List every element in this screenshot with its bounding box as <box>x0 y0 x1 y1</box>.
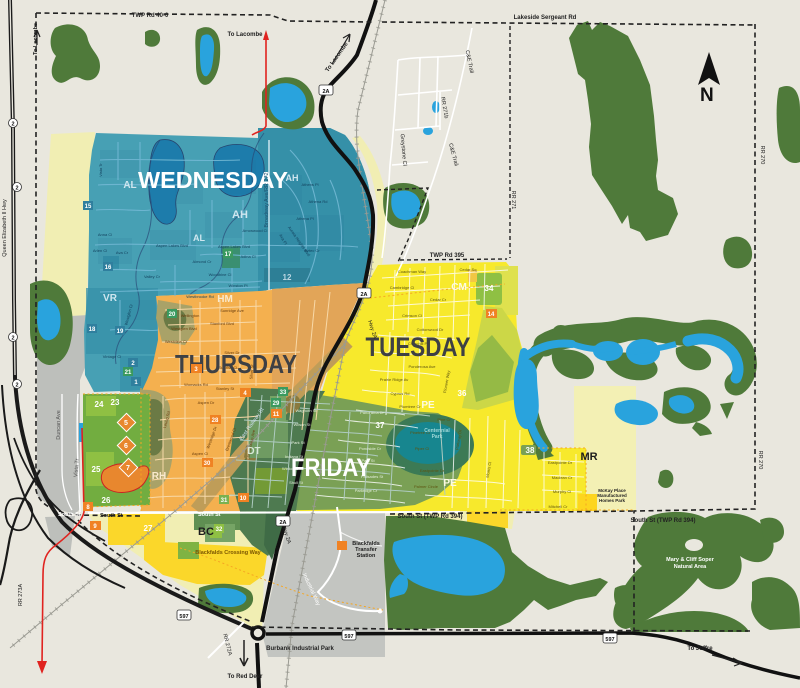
svg-text:South St: South St <box>58 512 81 518</box>
svg-text:South St: South St <box>198 512 221 518</box>
svg-text:Duncan Ave: Duncan Ave <box>56 410 62 440</box>
svg-text:23: 23 <box>111 398 120 407</box>
svg-text:21: 21 <box>125 370 132 376</box>
svg-text:Cedar Sq: Cedar Sq <box>460 267 477 272</box>
svg-text:Aspen Dr: Aspen Dr <box>198 400 215 405</box>
svg-text:Sunridge Ave: Sunridge Ave <box>220 308 244 313</box>
svg-text:Adina Cl: Adina Cl <box>240 254 255 259</box>
svg-text:Womacks Rd: Womacks Rd <box>184 382 208 387</box>
svg-text:Valley Cr: Valley Cr <box>144 274 161 279</box>
svg-text:AH: AH <box>232 209 248 221</box>
svg-text:To Joffre: To Joffre <box>687 646 713 652</box>
svg-text:Mary & Cliff Soper: Mary & Cliff Soper <box>666 557 715 563</box>
svg-text:Aspen Lakes Blvd: Aspen Lakes Blvd <box>218 244 250 249</box>
svg-text:Athena Pl: Athena Pl <box>296 216 313 221</box>
svg-text:Blackfalds Crossing Way: Blackfalds Crossing Way <box>195 550 261 556</box>
svg-text:Station: Station <box>357 553 376 559</box>
svg-text:TUESDAY: TUESDAY <box>366 332 471 362</box>
svg-text:MR: MR <box>580 451 597 463</box>
svg-text:12: 12 <box>283 273 292 282</box>
svg-text:Queen Elizabeth II Hwy: Queen Elizabeth II Hwy <box>2 199 8 257</box>
svg-text:11: 11 <box>273 412 280 418</box>
svg-text:AL: AL <box>123 180 136 191</box>
svg-text:N: N <box>700 85 714 106</box>
svg-text:2: 2 <box>11 336 14 342</box>
svg-text:36: 36 <box>458 389 467 398</box>
svg-text:6: 6 <box>124 443 128 450</box>
svg-text:Wilson St: Wilson St <box>294 422 312 427</box>
svg-text:Vintage Cl: Vintage Cl <box>103 354 121 359</box>
svg-text:Stanford Blvd: Stanford Blvd <box>210 321 234 326</box>
svg-text:South St (TWP Rd 394): South St (TWP Rd 394) <box>398 514 463 520</box>
svg-text:2: 2 <box>15 383 18 389</box>
svg-text:Stanley St: Stanley St <box>216 386 235 391</box>
svg-text:South St (TWP Rd 394): South St (TWP Rd 394) <box>631 518 696 524</box>
svg-text:Coachman Way: Coachman Way <box>398 269 426 274</box>
svg-text:597: 597 <box>344 634 353 640</box>
svg-text:Lakeside Sergeant Rd: Lakeside Sergeant Rd <box>514 15 577 21</box>
svg-text:PE: PE <box>421 400 435 411</box>
svg-text:Westview Cr: Westview Cr <box>165 339 188 344</box>
svg-text:15: 15 <box>85 204 92 210</box>
svg-text:DT: DT <box>247 446 260 457</box>
svg-text:Pondside Cr: Pondside Cr <box>359 446 382 451</box>
svg-text:PE: PE <box>443 478 457 489</box>
svg-text:FRIDAY: FRIDAY <box>291 454 371 482</box>
svg-text:Wellington: Wellington <box>181 313 200 318</box>
svg-text:CM: CM <box>451 282 467 293</box>
svg-text:19: 19 <box>117 329 124 335</box>
svg-text:2: 2 <box>11 122 14 128</box>
svg-text:Arrowwood Cl: Arrowwood Cl <box>243 228 268 233</box>
svg-text:30: 30 <box>204 461 211 467</box>
svg-text:32: 32 <box>216 527 223 533</box>
svg-text:AL: AL <box>193 233 205 243</box>
svg-text:Eastpointe Dr: Eastpointe Dr <box>420 468 445 473</box>
svg-text:Parkridge Cr: Parkridge Cr <box>355 488 378 493</box>
svg-text:Athens Pl: Athens Pl <box>301 182 318 187</box>
svg-text:14: 14 <box>488 312 495 318</box>
svg-text:VR: VR <box>103 293 118 304</box>
svg-text:Ponderosa Ave: Ponderosa Ave <box>408 364 436 369</box>
svg-text:Maclean Cr: Maclean Cr <box>552 475 573 480</box>
svg-text:Athena Rd: Athena Rd <box>309 199 328 204</box>
svg-text:Almond Cr: Almond Cr <box>193 259 213 264</box>
svg-text:Anna Cl: Anna Cl <box>98 232 112 237</box>
svg-text:597: 597 <box>605 637 614 643</box>
svg-text:RR 270: RR 270 <box>757 451 763 470</box>
svg-text:5: 5 <box>124 420 128 427</box>
svg-text:RH: RH <box>152 471 166 482</box>
svg-text:HM: HM <box>217 294 233 305</box>
svg-text:TWP Rd 40-0: TWP Rd 40-0 <box>132 13 169 19</box>
svg-text:28: 28 <box>212 418 219 424</box>
svg-text:BC: BC <box>198 526 214 538</box>
svg-text:29: 29 <box>273 401 280 407</box>
svg-text:Broadway Ave/RR 272: Broadway Ave/RR 272 <box>264 172 270 227</box>
svg-text:Eastpointe Dr: Eastpointe Dr <box>548 460 573 465</box>
svg-text:Ava Cr: Ava Cr <box>116 250 129 255</box>
svg-text:TWP Rd 395: TWP Rd 395 <box>430 253 465 259</box>
svg-text:Homes Park: Homes Park <box>599 498 626 503</box>
svg-text:2: 2 <box>15 186 18 192</box>
svg-text:17: 17 <box>225 252 232 258</box>
svg-text:Plumtree Cr: Plumtree Cr <box>399 404 421 409</box>
svg-text:24: 24 <box>95 400 104 409</box>
svg-text:2A: 2A <box>360 292 367 298</box>
svg-text:Mitchell Cr: Mitchell Cr <box>549 504 569 509</box>
svg-text:Burbank Industrial Park: Burbank Industrial Park <box>266 646 334 652</box>
svg-text:10: 10 <box>240 496 247 502</box>
svg-text:Aspen Cl: Aspen Cl <box>192 451 208 456</box>
svg-text:Park St: Park St <box>291 440 305 445</box>
svg-text:Park: Park <box>432 434 443 440</box>
svg-text:To Red Deer: To Red Deer <box>228 674 264 680</box>
svg-text:AH: AH <box>286 173 299 183</box>
svg-text:Prairie Ridge Av: Prairie Ridge Av <box>380 377 409 382</box>
svg-text:Westbrooke Rd: Westbrooke Rd <box>186 294 214 299</box>
svg-text:2A: 2A <box>322 89 329 95</box>
svg-text:RR 270: RR 270 <box>759 146 765 165</box>
svg-text:Murphy Cl: Murphy Cl <box>553 489 571 494</box>
svg-text:Vista Tr: Vista Tr <box>98 163 103 177</box>
svg-text:Piper Cl: Piper Cl <box>415 446 429 451</box>
svg-text:27: 27 <box>144 524 153 533</box>
svg-text:Cedar Cr: Cedar Cr <box>430 297 447 302</box>
svg-text:To Lacombe: To Lacombe <box>33 23 39 55</box>
svg-text:20: 20 <box>169 312 176 318</box>
svg-text:Cambridge Cl: Cambridge Cl <box>390 285 415 290</box>
svg-text:RR 273A: RR 273A <box>18 584 24 607</box>
svg-text:31: 31 <box>221 498 228 504</box>
svg-text:2A: 2A <box>279 520 286 526</box>
svg-text:Pine Cr: Pine Cr <box>437 417 451 422</box>
svg-text:South St: South St <box>100 513 123 519</box>
svg-text:Westglen Blvd: Westglen Blvd <box>171 326 197 331</box>
svg-text:38: 38 <box>526 446 535 455</box>
svg-text:Waghorn St: Waghorn St <box>296 408 318 413</box>
svg-text:26: 26 <box>102 496 111 505</box>
svg-text:Woodbine Cl: Woodbine Cl <box>209 272 232 277</box>
svg-text:597: 597 <box>179 614 188 620</box>
svg-text:RR 271: RR 271 <box>510 191 516 210</box>
svg-text:Crimson Cl: Crimson Cl <box>402 313 422 318</box>
svg-text:Cyprus Rd: Cyprus Rd <box>391 391 410 396</box>
svg-text:Natural Area: Natural Area <box>674 564 707 570</box>
svg-text:25: 25 <box>92 465 101 474</box>
svg-text:Panorama Dr: Panorama Dr <box>360 410 384 415</box>
svg-text:Arlen Cl: Arlen Cl <box>93 248 107 253</box>
svg-text:Winston Pl: Winston Pl <box>228 283 247 288</box>
svg-text:7: 7 <box>126 465 130 472</box>
svg-text:To Lacombe: To Lacombe <box>228 32 264 38</box>
svg-text:34: 34 <box>485 284 494 293</box>
svg-text:16: 16 <box>105 265 112 271</box>
svg-text:37: 37 <box>376 421 385 430</box>
svg-text:18: 18 <box>89 327 96 333</box>
svg-text:Aspen Lakes Blvd: Aspen Lakes Blvd <box>156 243 188 248</box>
svg-text:33: 33 <box>280 390 287 396</box>
svg-text:Palmer Circle: Palmer Circle <box>414 484 439 489</box>
